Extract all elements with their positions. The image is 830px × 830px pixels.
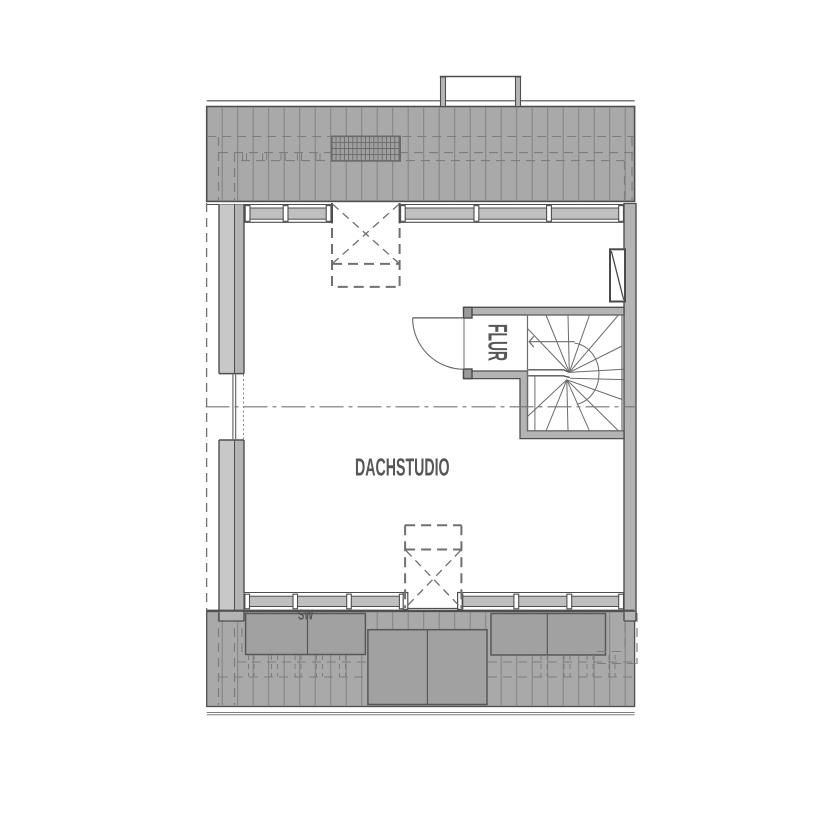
svg-text:FLUR: FLUR [483,324,513,361]
svg-text:SW: SW [298,608,314,624]
svg-text:DACHSTUDIO: DACHSTUDIO [355,455,450,482]
